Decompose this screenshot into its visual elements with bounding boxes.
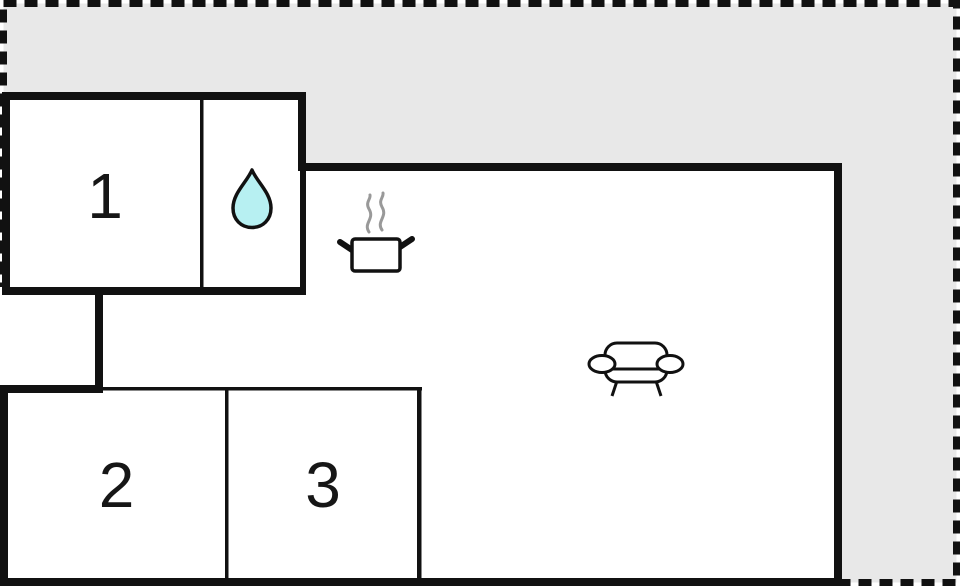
floor-plan: 1 2 3 xyxy=(0,0,960,586)
wall-mainroom-top xyxy=(306,163,842,171)
pot-body xyxy=(352,239,400,271)
sofa-armrest-left xyxy=(589,356,615,373)
sofa-armrest-right xyxy=(657,356,683,373)
cooking-pot-icon xyxy=(340,239,412,271)
wall-rooms23-top-outer xyxy=(0,385,103,393)
wall-room1-divider xyxy=(200,100,204,287)
wall-rooms23-divider xyxy=(225,390,229,578)
wall-bottom xyxy=(0,578,842,586)
wall-mainroom-right xyxy=(834,163,842,586)
wall-rooms23-left xyxy=(0,385,8,586)
wall-room3-right xyxy=(417,387,422,578)
wall-corridor-right xyxy=(95,287,103,393)
wall-bathroom-right xyxy=(300,171,306,295)
wall-rooms23-top-inner xyxy=(103,387,422,391)
wall-room1-right xyxy=(298,92,306,171)
floor-plan-drawing xyxy=(0,0,960,586)
wall-room1-bottom xyxy=(2,287,306,295)
wall-room1-top xyxy=(2,92,306,100)
wall-room1-left xyxy=(2,92,10,295)
